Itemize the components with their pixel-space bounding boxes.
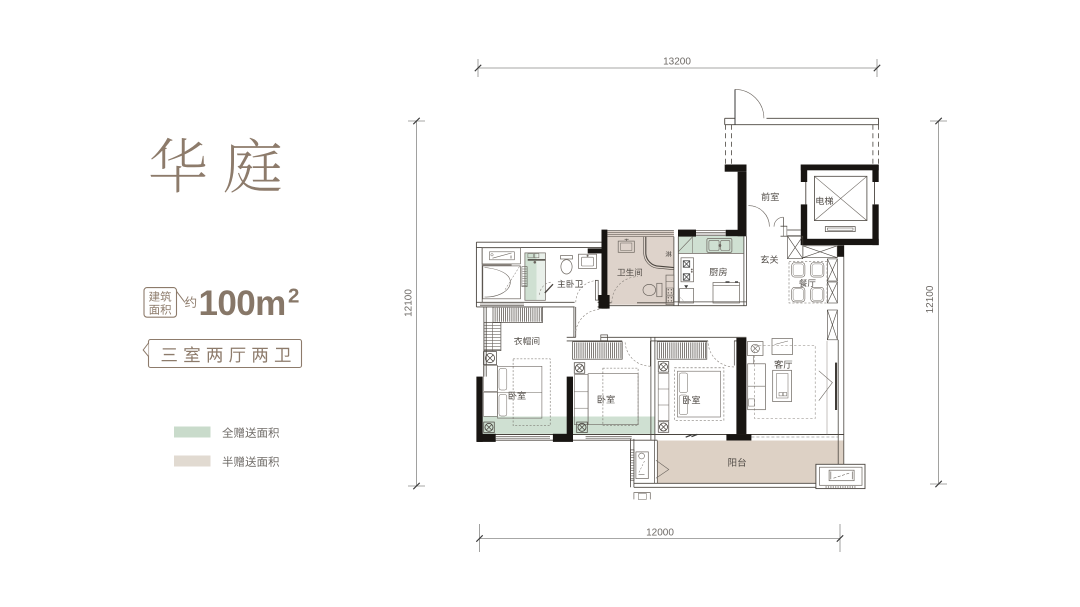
svg-text:2: 2 bbox=[288, 285, 299, 308]
svg-text:12100: 12100 bbox=[925, 285, 936, 313]
svg-text:12100: 12100 bbox=[404, 289, 415, 317]
svg-text:100m: 100m bbox=[199, 284, 286, 323]
svg-text:12000: 12000 bbox=[646, 528, 674, 539]
svg-text:13200: 13200 bbox=[663, 57, 691, 68]
